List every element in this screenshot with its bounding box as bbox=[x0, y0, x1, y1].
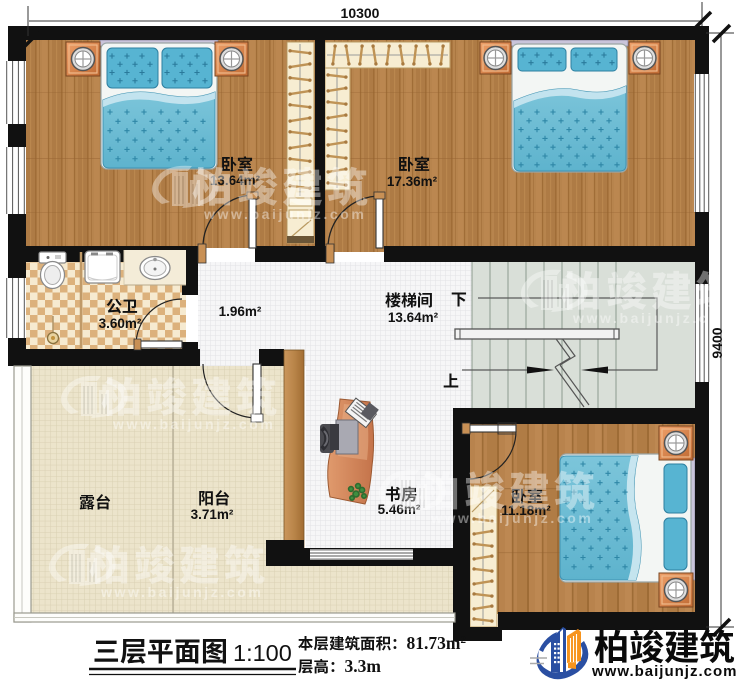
svg-text:三层平面图: 三层平面图 bbox=[93, 630, 228, 669]
svg-text:露台: 露台 bbox=[79, 489, 111, 513]
svg-text:层高：3.3m: 层高：3.3m bbox=[298, 655, 381, 677]
svg-text:13.64m²: 13.64m² bbox=[388, 310, 439, 325]
svg-text:www.baijunjz.com: www.baijunjz.com bbox=[430, 510, 593, 526]
svg-text:楼梯间: 楼梯间 bbox=[384, 287, 433, 311]
svg-text:柏竣建筑: 柏竣建筑 bbox=[419, 458, 599, 518]
svg-text:柏竣建筑: 柏竣建筑 bbox=[89, 532, 269, 592]
svg-text:1:100: 1:100 bbox=[233, 634, 292, 668]
svg-text:9400: 9400 bbox=[709, 327, 725, 358]
svg-text:下: 下 bbox=[451, 286, 467, 310]
svg-text:柏竣建筑: 柏竣建筑 bbox=[561, 258, 741, 318]
svg-text:www.baijunjz.com: www.baijunjz.com bbox=[203, 206, 366, 222]
svg-text:公卫: 公卫 bbox=[106, 293, 138, 317]
svg-text:柏竣建筑: 柏竣建筑 bbox=[101, 364, 281, 424]
svg-text:www.baijunjz.com: www.baijunjz.com bbox=[112, 416, 275, 432]
svg-text:3.71m²: 3.71m² bbox=[191, 507, 234, 522]
svg-text:www.baijunjz.com: www.baijunjz.com bbox=[572, 310, 735, 326]
svg-text:10300: 10300 bbox=[341, 5, 380, 21]
svg-text:3.60m²: 3.60m² bbox=[99, 316, 142, 331]
svg-text:柏竣建筑: 柏竣建筑 bbox=[192, 154, 372, 214]
svg-text:1.96m²: 1.96m² bbox=[219, 304, 262, 319]
svg-text:阳台: 阳台 bbox=[198, 485, 230, 509]
svg-text:17.36m²: 17.36m² bbox=[387, 174, 438, 189]
svg-text:www.baijunjz.com: www.baijunjz.com bbox=[100, 584, 263, 600]
svg-text:上: 上 bbox=[443, 368, 459, 392]
svg-text:本层建筑面积：81.73m2: 本层建筑面积：81.73m2 bbox=[298, 632, 466, 654]
svg-text:www.baijunjz.com: www.baijunjz.com bbox=[591, 660, 737, 681]
svg-text:卧室: 卧室 bbox=[398, 151, 430, 175]
